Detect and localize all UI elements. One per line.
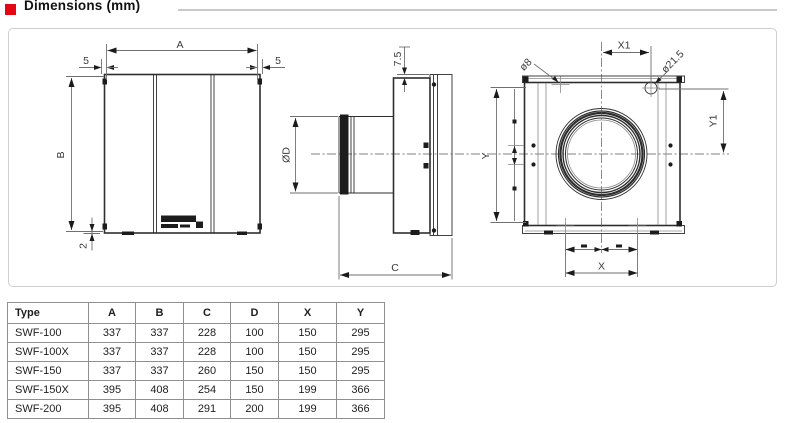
table-row: SWF-100337337228100150295 <box>8 324 385 343</box>
foot <box>411 230 420 235</box>
table-header-row: TypeABCDXY <box>8 303 385 324</box>
value-cell: 337 <box>136 343 184 362</box>
dim-label-X1: X1 <box>618 40 631 52</box>
front-view <box>103 75 263 236</box>
dim-label-C: C <box>391 262 399 274</box>
dim-label-o8: ø8 <box>517 56 534 73</box>
plate-screw <box>432 228 436 232</box>
dim-label-Y: Y <box>480 152 492 159</box>
table-row: SWF-150X395408254150199366 <box>8 381 385 400</box>
value-cell: 200 <box>231 400 279 419</box>
value-cell: 260 <box>184 362 231 381</box>
value-cell: 291 <box>184 400 231 419</box>
value-cell: 228 <box>184 324 231 343</box>
column-header: D <box>231 303 279 324</box>
value-cell: 337 <box>136 324 184 343</box>
value-cell: 254 <box>184 381 231 400</box>
table-row: SWF-100X337337228100150295 <box>8 343 385 362</box>
value-cell: 395 <box>89 400 136 419</box>
value-cell: 295 <box>337 324 385 343</box>
value-cell: 337 <box>89 324 136 343</box>
type-cell: SWF-150X <box>8 381 89 400</box>
value-cell: 408 <box>136 381 184 400</box>
plate-screw <box>432 82 436 86</box>
dim-label-Y1: Y1 <box>708 114 720 127</box>
product-label-sticker <box>161 216 203 229</box>
value-cell: 199 <box>279 400 337 419</box>
value-cell: 366 <box>337 381 385 400</box>
value-cell: 337 <box>136 362 184 381</box>
value-cell: 366 <box>337 400 385 419</box>
value-cell: 337 <box>89 362 136 381</box>
column-header: B <box>136 303 184 324</box>
value-cell: 408 <box>136 400 184 419</box>
value-cell: 150 <box>279 343 337 362</box>
duct-spigot <box>339 115 394 195</box>
dim-label-OD: ØD <box>281 147 293 163</box>
dim-label-A: A <box>176 39 183 51</box>
value-cell: 337 <box>89 343 136 362</box>
corner-clips <box>103 79 263 230</box>
value-cell: 150 <box>231 381 279 400</box>
value-cell: 295 <box>337 362 385 381</box>
dim-label-2: 2 <box>78 243 90 249</box>
side-body-outline <box>394 78 431 233</box>
front-box-outline <box>105 75 261 234</box>
type-cell: SWF-100X <box>8 343 89 362</box>
value-cell: 199 <box>279 381 337 400</box>
side-view <box>339 75 452 236</box>
back-view-dimensions: Y ø8 X1 ø21.5 Y1 <box>480 40 729 278</box>
column-header: Y <box>337 303 385 324</box>
column-header: Type <box>8 303 89 324</box>
type-cell: SWF-100 <box>8 324 89 343</box>
type-cell: SWF-200 <box>8 400 89 419</box>
dim-label-7-5: 7.5 <box>392 52 404 67</box>
value-cell: 100 <box>231 343 279 362</box>
technical-drawing: A 5 5 B 2 <box>0 0 789 300</box>
rubber-seal <box>340 115 349 195</box>
dim-label-5-right: 5 <box>275 55 281 67</box>
dim-label-o21-5: ø21.5 <box>659 48 687 76</box>
column-header: X <box>279 303 337 324</box>
value-cell: 100 <box>231 324 279 343</box>
column-header: C <box>184 303 231 324</box>
value-cell: 295 <box>337 343 385 362</box>
type-cell: SWF-150 <box>8 362 89 381</box>
table-row: SWF-200395408291200199366 <box>8 400 385 419</box>
page: Dimensions (mm) <box>0 0 789 423</box>
dim-label-B: B <box>55 151 67 158</box>
value-cell: 150 <box>279 362 337 381</box>
value-cell: 150 <box>231 362 279 381</box>
dim-label-5-left: 5 <box>83 55 89 67</box>
dimensions-table: TypeABCDXY SWF-100337337228100150295SWF-… <box>7 302 385 419</box>
column-header: A <box>89 303 136 324</box>
value-cell: 228 <box>184 343 231 362</box>
value-cell: 150 <box>279 324 337 343</box>
dim-label-X: X <box>598 261 605 273</box>
dimensions-table-body: SWF-100337337228100150295SWF-100X3373372… <box>8 324 385 419</box>
value-cell: 395 <box>89 381 136 400</box>
table-row: SWF-150337337260150150295 <box>8 362 385 381</box>
side-mounting-holes <box>531 143 672 166</box>
clip <box>424 143 429 149</box>
clip <box>424 163 429 169</box>
